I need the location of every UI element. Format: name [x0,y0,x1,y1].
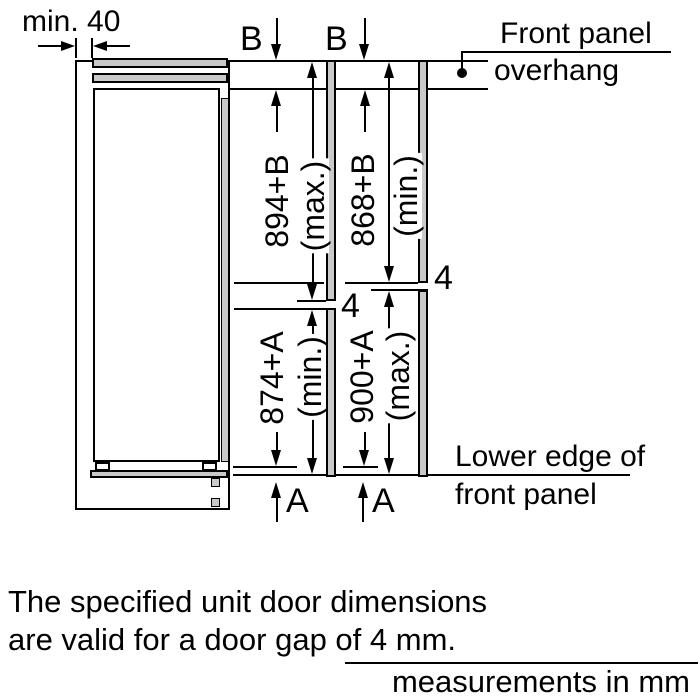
dim-label-874A: 874+A [256,329,288,426]
arrow-down-icon [307,458,317,474]
leader-dot-icon [457,68,467,78]
front-panel-lower-max [418,290,428,477]
gap-line-max-bottom [234,308,336,310]
dim-label-900A: 900+A [346,328,378,425]
lower-edge-main-line [233,474,630,476]
arrow-down-icon [384,266,394,282]
gap-line-min-right [345,282,418,284]
overhang-a-label-1: A [286,484,309,520]
front-panel-top-line [228,60,488,62]
cabinet-bottom-edge [75,508,230,510]
dim-label-894B: 894+B [261,152,293,249]
dim-label-868B-qualifier: (min.) [390,153,422,239]
gap-line-max-top [297,300,326,302]
plinth-strip [90,470,228,478]
appliance-installation-diagram: min. 40 B B [0,0,700,700]
dim-label-900A-qualifier: (max.) [382,329,414,424]
top-fixing-bracket-upper [92,58,228,68]
arrow-right-icon [61,41,75,51]
lower-edge-label-line2: front panel [455,479,597,511]
overhang-b-label-2: B [325,22,348,58]
lower-edge-short-line-right [343,466,378,468]
lower-edge-label-line1: Lower edge of [455,441,645,473]
front-panel-overhang-label-line2: overhang [494,55,619,87]
cabinet-left-wall [75,60,77,510]
front-panel-overhang-leader-line [461,51,671,53]
arrow-down-icon [359,44,369,60]
arrow-down-icon [271,450,281,466]
footnote-line1: The specified unit door dimensions [8,586,487,619]
dim-stem [364,104,366,132]
overhang-a-label-2: A [372,484,395,520]
a-arrow-stem-2 [362,496,364,522]
niche-top-line [228,88,488,90]
dim-stem [276,104,278,132]
lower-edge-short-line-left [233,466,297,468]
footnote-line2: are valid for a door gap of 4 mm. [8,624,456,657]
a-arrow-stem-1 [276,496,278,522]
dim-label-894B-qualifier: (max.) [297,159,329,254]
arrow-down-icon [307,284,317,300]
min-clearance-arrow-line-right [106,45,130,47]
overhang-b-label-1: B [240,22,263,58]
min-clearance-tick-left [75,38,77,58]
top-fixing-bracket-lower [92,73,228,83]
front-panel-overhang-label-line1: Front panel [500,18,652,50]
hinge-side-filler-strip [221,98,229,462]
arrow-down-icon [384,458,394,474]
dim-label-874A-qualifier: (min.) [294,334,326,420]
door-gap-label-2: 4 [434,261,453,297]
arrow-down-icon [271,44,281,60]
arrow-down-icon [359,450,369,466]
dim-label-868B: 868+B [347,151,379,248]
appliance-door [93,88,220,462]
door-gap-label-1: 4 [341,289,360,325]
hinge-block-upper [211,478,220,487]
min-clearance-label: min. 40 [22,6,120,38]
units-label: measurements in mm [340,666,690,699]
dim-stem [276,432,278,452]
dim-stem [364,432,366,452]
hinge-block-lower [211,498,220,507]
arrow-left-icon [93,41,107,51]
